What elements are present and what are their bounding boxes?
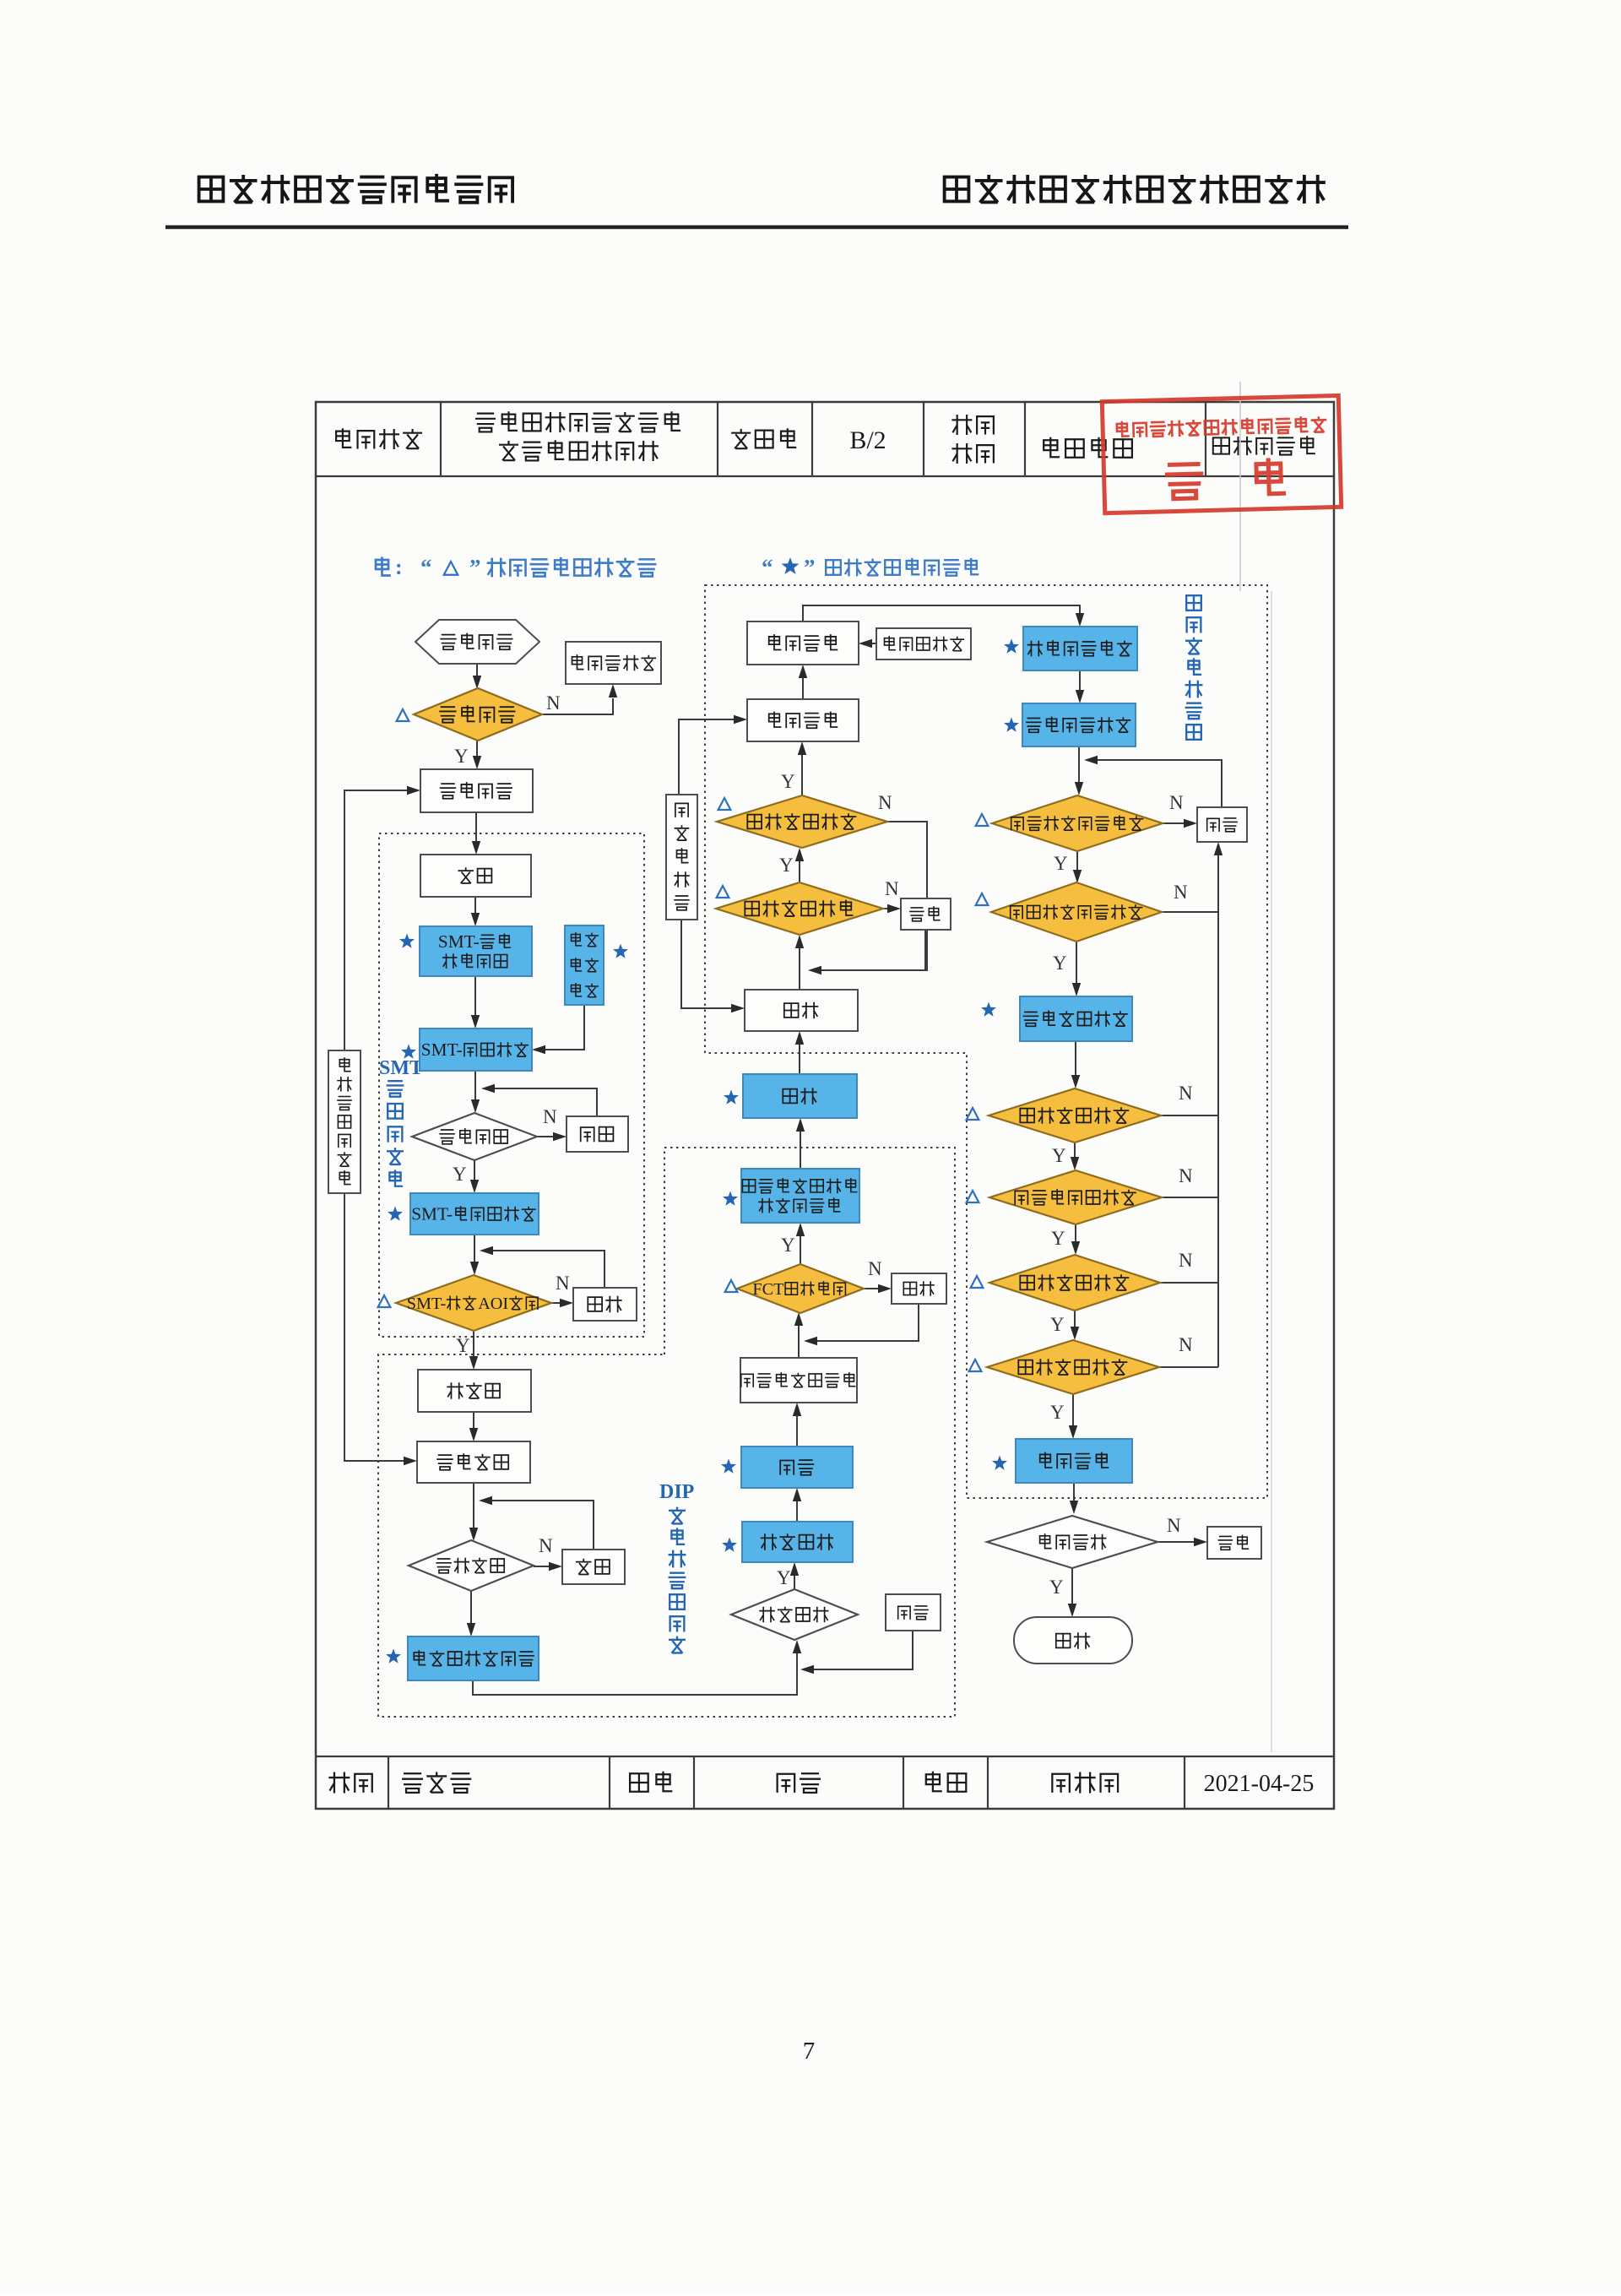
svg-text:Y: Y [1050,1314,1065,1335]
svg-text:B/2: B/2 [849,426,886,454]
svg-text:N: N [556,1273,570,1294]
svg-text:SMT-: SMT- [438,931,480,952]
svg-text:N: N [546,692,561,714]
svg-text:SMT-: SMT- [421,1039,463,1060]
svg-text:2021-04-25: 2021-04-25 [1204,1771,1315,1797]
svg-text:N: N [878,792,892,813]
svg-text:N: N [543,1106,557,1127]
svg-text:Y: Y [777,1567,791,1588]
svg-text:DIP: DIP [659,1481,694,1503]
svg-text:Y: Y [1049,1577,1064,1598]
svg-text::: : [395,555,403,579]
svg-text:AOI: AOI [478,1295,508,1313]
svg-text:N: N [1174,882,1188,903]
svg-text:Y: Y [1051,1228,1065,1249]
svg-text:”: ” [469,555,481,580]
svg-text:Y: Y [453,1164,467,1185]
svg-text:Y: Y [1053,953,1067,974]
svg-text:N: N [1179,1165,1193,1186]
svg-text:”: ” [804,555,816,580]
svg-text:Y: Y [781,771,795,792]
svg-text:N: N [1169,792,1184,813]
svg-text:“: “ [762,555,773,580]
svg-text:N: N [1179,1083,1193,1104]
svg-text:N: N [885,878,899,899]
svg-text:N: N [1179,1334,1193,1355]
svg-text:Y: Y [1054,853,1068,874]
svg-text:N: N [539,1535,553,1556]
svg-text:N: N [1167,1515,1181,1536]
svg-text:Y: Y [1050,1402,1065,1423]
svg-text:Y: Y [779,855,794,876]
svg-text:SMT: SMT [379,1057,423,1079]
svg-text:N: N [1179,1250,1193,1271]
svg-text:“: “ [420,555,432,580]
svg-text:FCT: FCT [752,1280,783,1299]
svg-text:N: N [868,1258,882,1279]
svg-text:SMT-: SMT- [407,1295,446,1313]
svg-text:Y: Y [1052,1145,1066,1166]
svg-text:7: 7 [803,2038,816,2065]
svg-text:Y: Y [781,1235,795,1256]
svg-text:Y: Y [454,746,469,767]
svg-text:SMT-: SMT- [411,1204,453,1224]
svg-text:Y: Y [456,1335,470,1356]
